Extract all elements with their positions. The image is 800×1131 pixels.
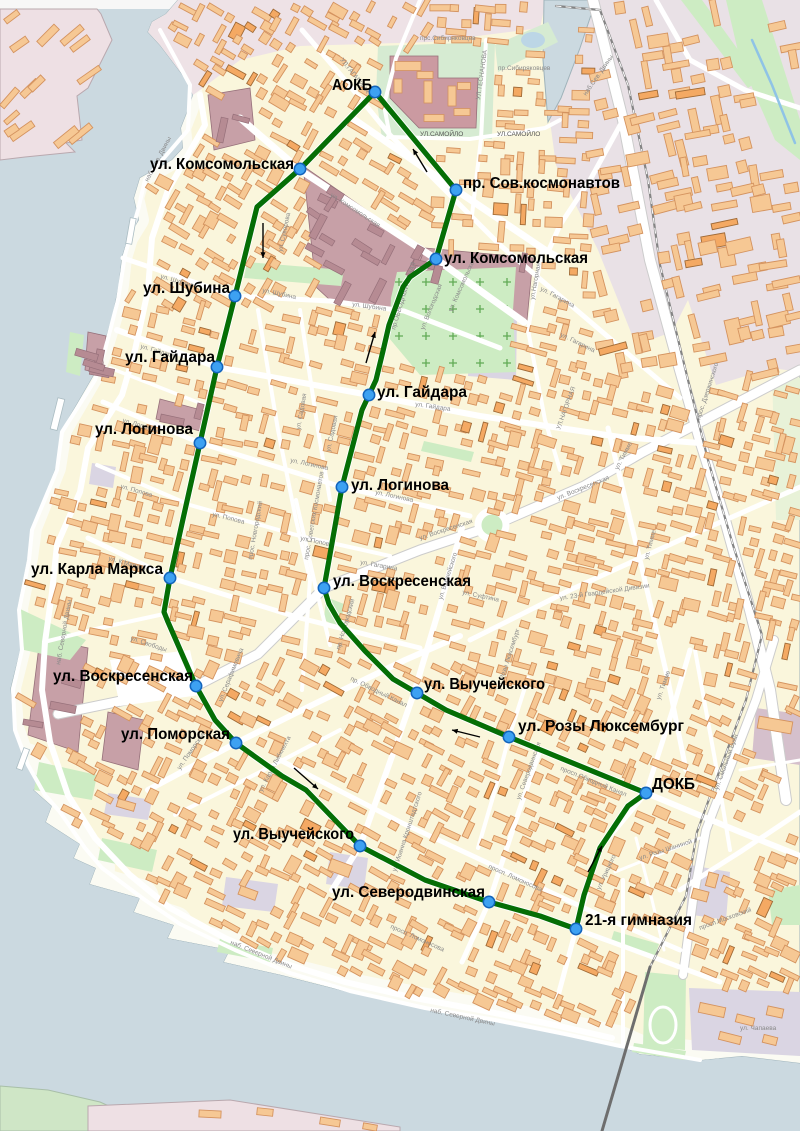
svg-text:ул. Логинова: ул. Логинова (351, 477, 449, 494)
svg-text:ул. Воскресенская: ул. Воскресенская (53, 668, 193, 685)
svg-text:ул. Комсомольская: ул. Комсомольская (444, 250, 588, 267)
svg-text:ул. Шубина: ул. Шубина (143, 280, 230, 297)
svg-text:АОКБ: АОКБ (332, 77, 372, 94)
svg-text:ул. Розы Люксембург: ул. Розы Люксембург (518, 718, 684, 735)
svg-text:ул. Гайдара: ул. Гайдара (125, 349, 215, 366)
svg-text:ул. Выучейского: ул. Выучейского (233, 826, 354, 843)
svg-text:ул. Поморская: ул. Поморская (121, 726, 230, 743)
svg-text:ул. Воскресенская: ул. Воскресенская (333, 573, 471, 590)
svg-text:21-я гимназия: 21-я гимназия (585, 912, 692, 929)
svg-text:ДОКБ: ДОКБ (652, 776, 695, 793)
svg-text:ул. Логинова: ул. Логинова (95, 421, 193, 438)
svg-text:ул. Гайдара: ул. Гайдара (377, 384, 467, 401)
svg-text:пр.Сибиряковцев: пр.Сибиряковцев (498, 64, 551, 72)
svg-text:ул. Северодвинская: ул. Северодвинская (332, 884, 485, 901)
svg-text:ул. Чапаева: ул. Чапаева (740, 1025, 777, 1032)
svg-text:ул. Комсомольская: ул. Комсомольская (150, 156, 294, 173)
svg-text:УЛ.САМОЙЛО: УЛ.САМОЙЛО (497, 129, 540, 138)
svg-text:ул. Выучейского: ул. Выучейского (424, 676, 545, 693)
svg-text:ул. Карла Маркса: ул. Карла Маркса (31, 561, 163, 578)
svg-text:пр. Сов.космонавтов: пр. Сов.космонавтов (463, 175, 620, 192)
svg-text:УЛ.САМОЙЛО: УЛ.САМОЙЛО (420, 129, 463, 138)
svg-text:прс.Сибиряковцев: прс.Сибиряковцев (420, 34, 476, 42)
